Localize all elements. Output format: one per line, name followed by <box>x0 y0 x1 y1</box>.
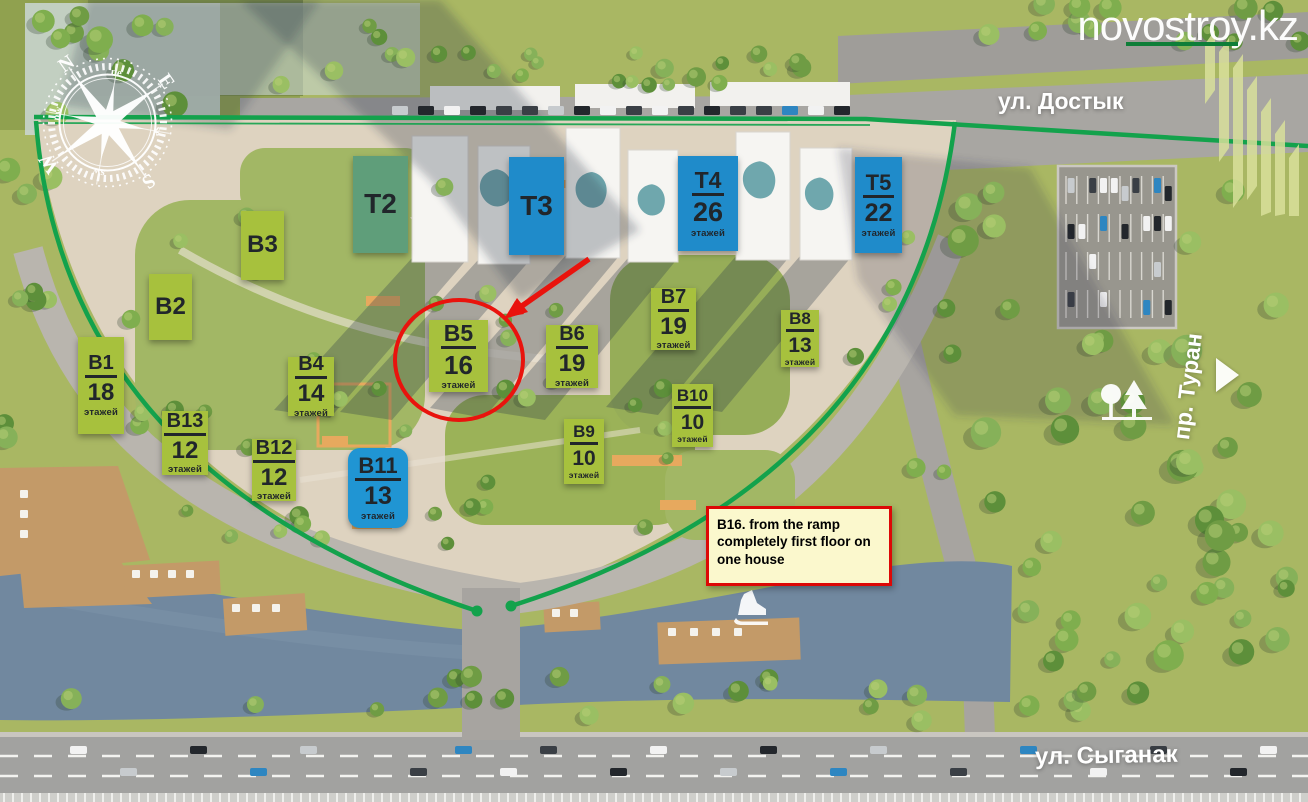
building-name: B4 <box>295 354 327 379</box>
building-name: B3 <box>244 232 281 258</box>
building-label-b7[interactable]: B7 19 этажей <box>651 288 696 350</box>
building-label-b10[interactable]: B10 10 этажей <box>672 384 713 447</box>
building-label-b4[interactable]: B4 14 этажей <box>288 357 334 416</box>
site-plan-map: N E S W ne se sw nw B1 18 этажей B2 эта <box>0 0 1308 802</box>
building-floors-word: этажей <box>361 511 395 522</box>
building-floors-word: этажей <box>168 464 202 475</box>
building-floors: 22 <box>865 200 893 228</box>
building-floors: 26 <box>693 198 723 228</box>
building-floors-word: этажей <box>657 340 691 351</box>
building-label-t3[interactable]: T3 этажей <box>509 157 564 255</box>
annotation-note: B16. from the ramp completely first floo… <box>706 506 892 586</box>
building-floors: 19 <box>559 351 586 377</box>
building-label-b13[interactable]: B13 12 этажей <box>162 411 208 475</box>
building-floors-word: этажей <box>569 470 600 480</box>
building-name: T5 <box>863 171 895 198</box>
building-name: B7 <box>658 287 690 312</box>
building-label-b11[interactable]: B11 13 этажей <box>348 448 408 528</box>
highlight-circle <box>393 298 525 422</box>
building-name: B10 <box>674 387 711 409</box>
building-label-t4[interactable]: T4 26 этажей <box>678 156 738 251</box>
building-label-b3[interactable]: B3 этажей <box>241 211 284 280</box>
building-name: B13 <box>164 411 207 436</box>
building-floors-word: этажей <box>677 434 708 444</box>
building-floors-word: этажей <box>691 228 725 239</box>
building-name: B6 <box>556 324 588 349</box>
building-floors-word: этажей <box>785 357 816 367</box>
building-name: B9 <box>570 423 598 445</box>
building-floors: 14 <box>298 381 325 407</box>
building-label-b8[interactable]: B8 13 этажей <box>781 310 819 367</box>
building-name: B12 <box>253 438 296 463</box>
building-floors: 10 <box>681 411 704 434</box>
annotation-note-text: B16. from the ramp completely first floo… <box>717 517 871 567</box>
building-name: B1 <box>85 353 117 378</box>
building-name: B11 <box>355 454 400 481</box>
building-label-t5[interactable]: T5 22 этажей <box>855 157 902 253</box>
building-floors: 18 <box>88 380 115 406</box>
building-floors: 12 <box>172 438 199 464</box>
building-floors-word: этажей <box>294 408 328 419</box>
building-floors: 19 <box>660 314 687 340</box>
building-label-t2[interactable]: T2 этажей <box>353 156 408 253</box>
building-floors-word: этажей <box>862 228 896 239</box>
building-floors: 13 <box>788 334 811 357</box>
building-name: T4 <box>692 168 725 196</box>
building-label-b12[interactable]: B12 12 этажей <box>252 439 296 501</box>
building-label-b9[interactable]: B9 10 этажей <box>564 419 604 484</box>
building-label-b2[interactable]: B2 этажей <box>149 274 192 340</box>
building-name: B8 <box>786 310 814 332</box>
building-floors: 10 <box>572 447 595 470</box>
building-name: T3 <box>517 191 556 221</box>
building-floors: 13 <box>364 483 392 511</box>
building-label-b6[interactable]: B6 19 этажей <box>546 325 598 388</box>
building-name: T2 <box>361 189 400 219</box>
building-label-b1[interactable]: B1 18 этажей <box>78 337 124 434</box>
building-floors: 12 <box>261 465 288 491</box>
building-name: B2 <box>152 294 189 320</box>
building-floors-word: этажей <box>555 378 589 389</box>
building-floors-word: этажей <box>84 407 118 418</box>
building-labels: B1 18 этажей B2 этажей B3 этажей B4 14 э… <box>0 0 1308 802</box>
building-floors-word: этажей <box>257 491 291 502</box>
watermark-underline <box>1126 42 1238 46</box>
